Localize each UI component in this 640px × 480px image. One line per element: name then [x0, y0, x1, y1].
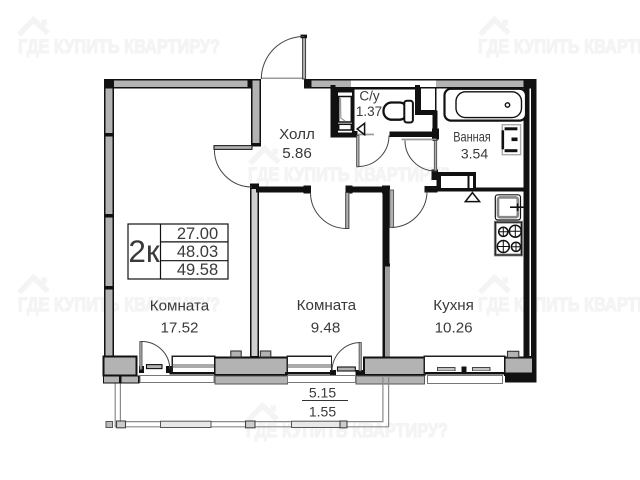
svg-text:5.15: 5.15 [309, 385, 336, 401]
svg-text:Ванная: Ванная [453, 129, 491, 145]
svg-text:49.58: 49.58 [177, 261, 218, 279]
svg-text:9.48: 9.48 [311, 320, 341, 337]
svg-text:Кухня: Кухня [433, 297, 474, 314]
svg-text:17.52: 17.52 [160, 320, 198, 337]
svg-text:ГДЕ КУПИТЬ КВАРТИРУ?: ГДЕ КУПИТЬ КВАРТИРУ? [478, 294, 640, 316]
svg-text:2к: 2к [128, 233, 160, 269]
svg-text:ГДЕ КУПИТЬ КВАРТИРУ?: ГДЕ КУПИТЬ КВАРТИРУ? [478, 36, 640, 58]
svg-text:ГДЕ КУПИТЬ КВАРТИРУ?: ГДЕ КУПИТЬ КВАРТИРУ? [18, 36, 220, 58]
svg-text:48.03: 48.03 [177, 243, 218, 261]
svg-text:Комната: Комната [297, 297, 357, 314]
svg-text:10.26: 10.26 [435, 320, 473, 337]
svg-text:Холл: Холл [279, 126, 315, 143]
svg-text:ГДЕ КУПИТЬ КВАРТИРУ?: ГДЕ КУПИТЬ КВАРТИРУ? [248, 164, 450, 186]
svg-text:С/у: С/у [359, 89, 380, 104]
svg-text:1.37: 1.37 [356, 104, 382, 119]
svg-text:5.86: 5.86 [282, 145, 312, 162]
svg-text:3.54: 3.54 [461, 146, 488, 162]
svg-text:27.00: 27.00 [177, 225, 218, 243]
svg-text:Комната: Комната [150, 298, 210, 315]
svg-text:1.55: 1.55 [309, 404, 336, 420]
